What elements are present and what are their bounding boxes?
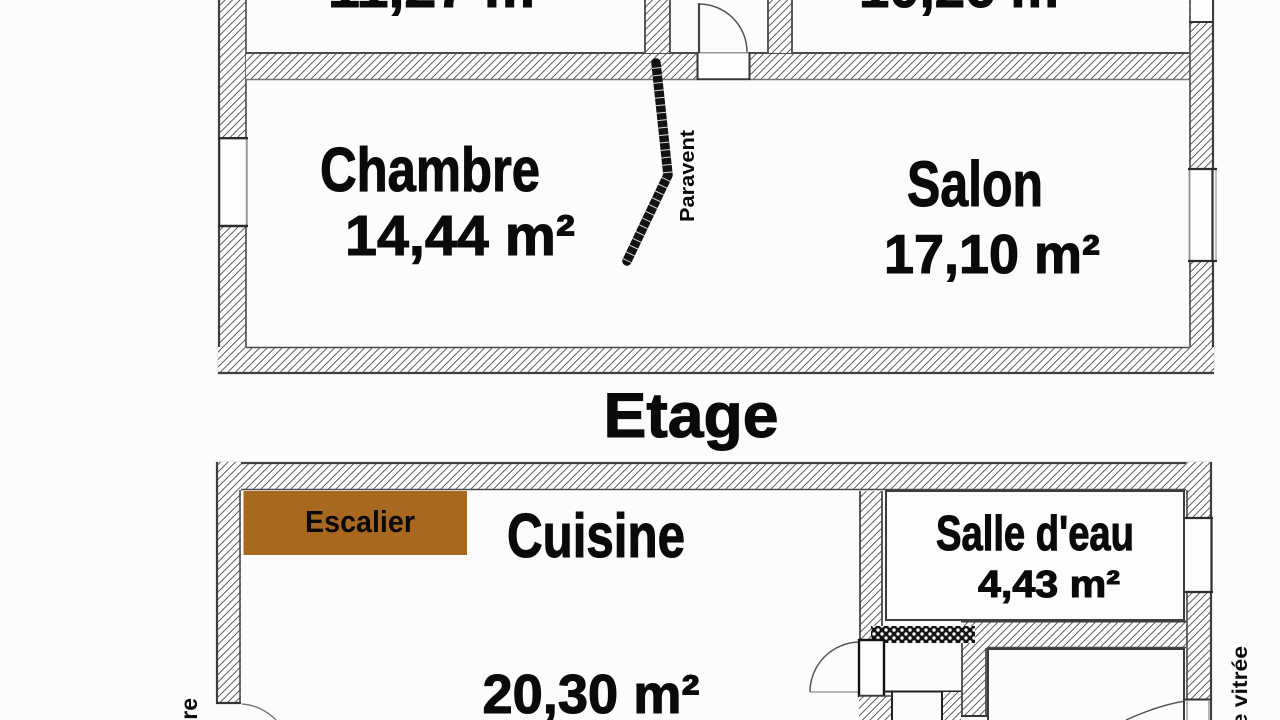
svg-text:Chambre: Chambre <box>320 136 540 205</box>
svg-text:17,10 m²: 17,10 m² <box>884 223 1100 285</box>
svg-text:Paravent: Paravent <box>677 130 699 222</box>
svg-text:Cuisine: Cuisine <box>507 502 685 571</box>
svg-text:4,43 m²: 4,43 m² <box>978 564 1120 606</box>
svg-text:14,44 m²: 14,44 m² <box>345 204 575 268</box>
svg-text:10,26 m²: 10,26 m² <box>859 0 1077 19</box>
svg-text:Etage: Etage <box>604 381 779 451</box>
svg-text:Salle d'eau: Salle d'eau <box>936 507 1134 561</box>
svg-text:Baie vitrée: Baie vitrée <box>1229 646 1252 720</box>
svg-text:Porte fenêtre: Porte fenêtre <box>176 698 202 720</box>
svg-text:11,27 m²: 11,27 m² <box>328 0 554 19</box>
svg-text:20,30 m²: 20,30 m² <box>483 663 700 720</box>
svg-text:Escalier: Escalier <box>305 504 415 539</box>
svg-text:Salon: Salon <box>907 148 1043 220</box>
